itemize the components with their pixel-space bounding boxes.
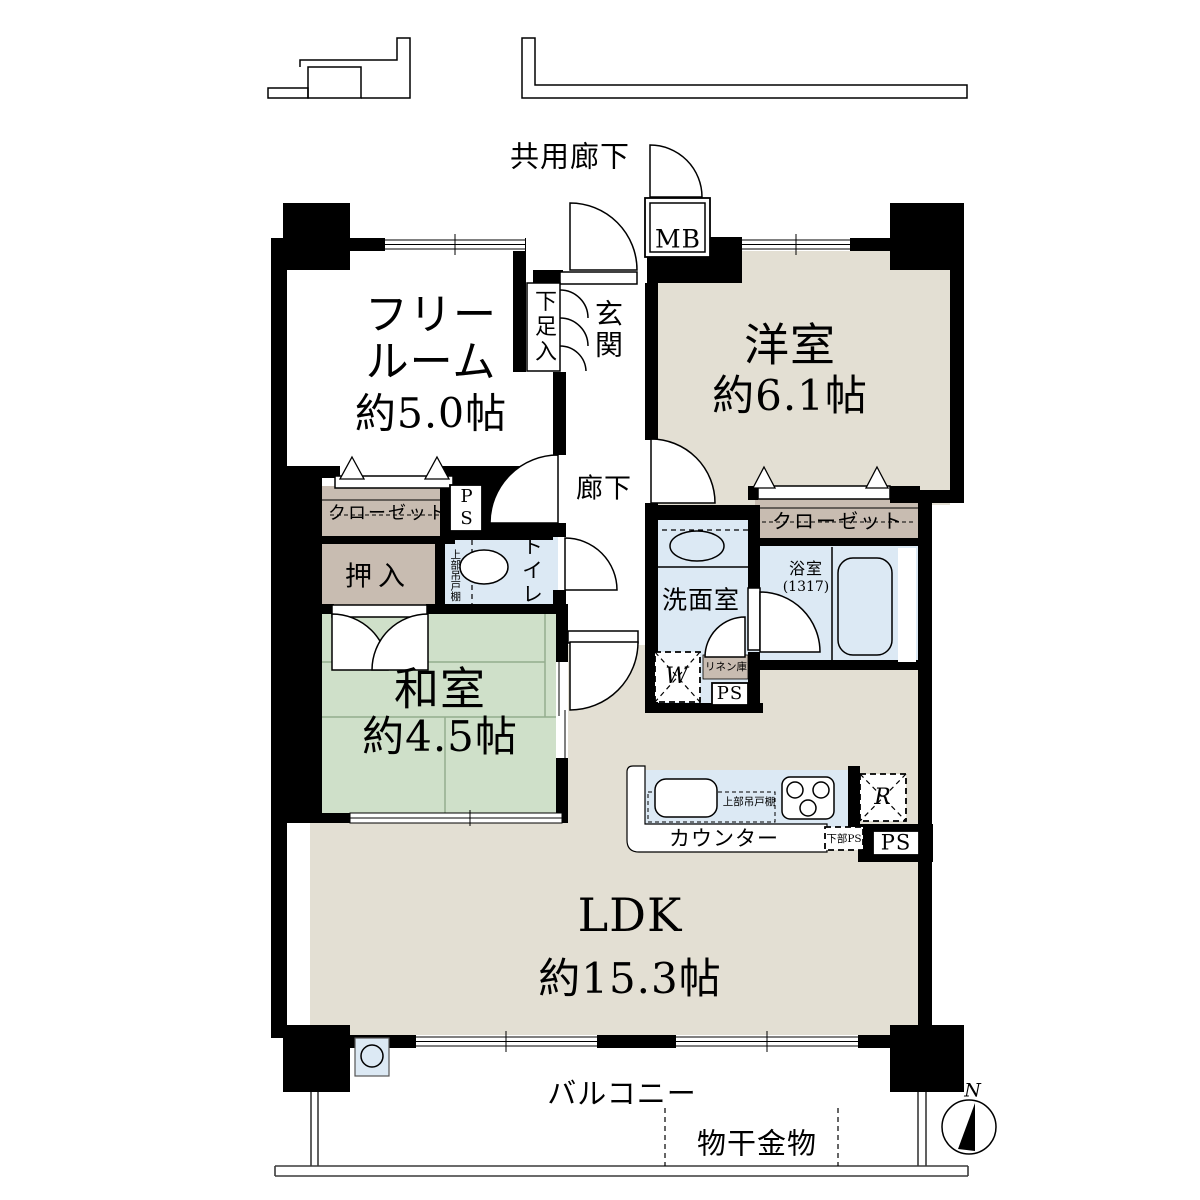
free-room-label: ルーム [366,342,497,385]
ldk-area: 約15.3帖 [538,958,722,1000]
japanese-room-area: 約4.5帖 [362,716,518,758]
folding-door-mark [340,457,364,479]
washroom-label: 洗面室 [662,588,740,613]
free-room-label: フリー [365,295,497,338]
section-outline-left [268,38,410,98]
free-room-door [490,455,558,523]
bathroom-size: (1317) [783,580,830,594]
kitchen-sink [655,779,717,817]
bathroom-label: 浴室 [789,561,823,577]
oshiire-label: 押入 [345,564,411,591]
lower-ps-label: 下部PS [826,834,861,845]
common-corridor-label: 共用廊下 [510,143,630,172]
closet-left-label: クローゼット [328,505,448,523]
entrance-door [570,203,637,270]
ldk-label: LDK [578,892,683,938]
bath-door-leaf [748,588,760,650]
japanese-room-label: 和室 [394,667,486,712]
toilet-label: トイレ [521,535,542,607]
corridor-label: 廊下 [576,476,632,503]
refrigerator-label: R [874,787,892,809]
balcony-faucet-box [355,1038,389,1076]
balcony-label: バルコニー [547,1080,696,1109]
ps-label: PS [881,833,912,854]
section-outline-right [522,38,967,98]
ps-label: PS [457,486,475,530]
counter-label: カウンター [669,829,779,850]
kitchen-upper-cabinet-label: 上部吊戸棚 [723,797,776,808]
entrance-step [560,272,637,284]
entrance-label: 玄関 [593,299,621,361]
compass [942,1100,996,1154]
closet-right-label: クローゼット [772,511,904,531]
western-room-area: 約6.1帖 [712,375,868,417]
ps-label: PS [717,685,743,703]
floor-plan: 共用廊下 MB フリー ルーム 約5.0帖 下足入 玄関 洋室 約6.1帖 廊下… [0,0,1200,1200]
mb-door [650,145,702,197]
north-label: N [964,1082,982,1101]
free-room-area: 約5.0帖 [355,394,507,435]
toilet-upper-cabinet-label: 上部吊戸棚 [450,549,461,602]
shoe-cabinet-label: 下足入 [532,290,554,365]
linen-cabinet-label: リネン庫 [705,662,747,673]
meter-box-label: MB [655,227,701,252]
western-room-label: 洋室 [744,323,836,368]
washer-label: W [665,666,689,688]
toilet-bowl [460,550,508,584]
floor-plan-drawing [0,0,1200,1200]
drying-fixture-label: 物干金物 [697,1130,817,1159]
